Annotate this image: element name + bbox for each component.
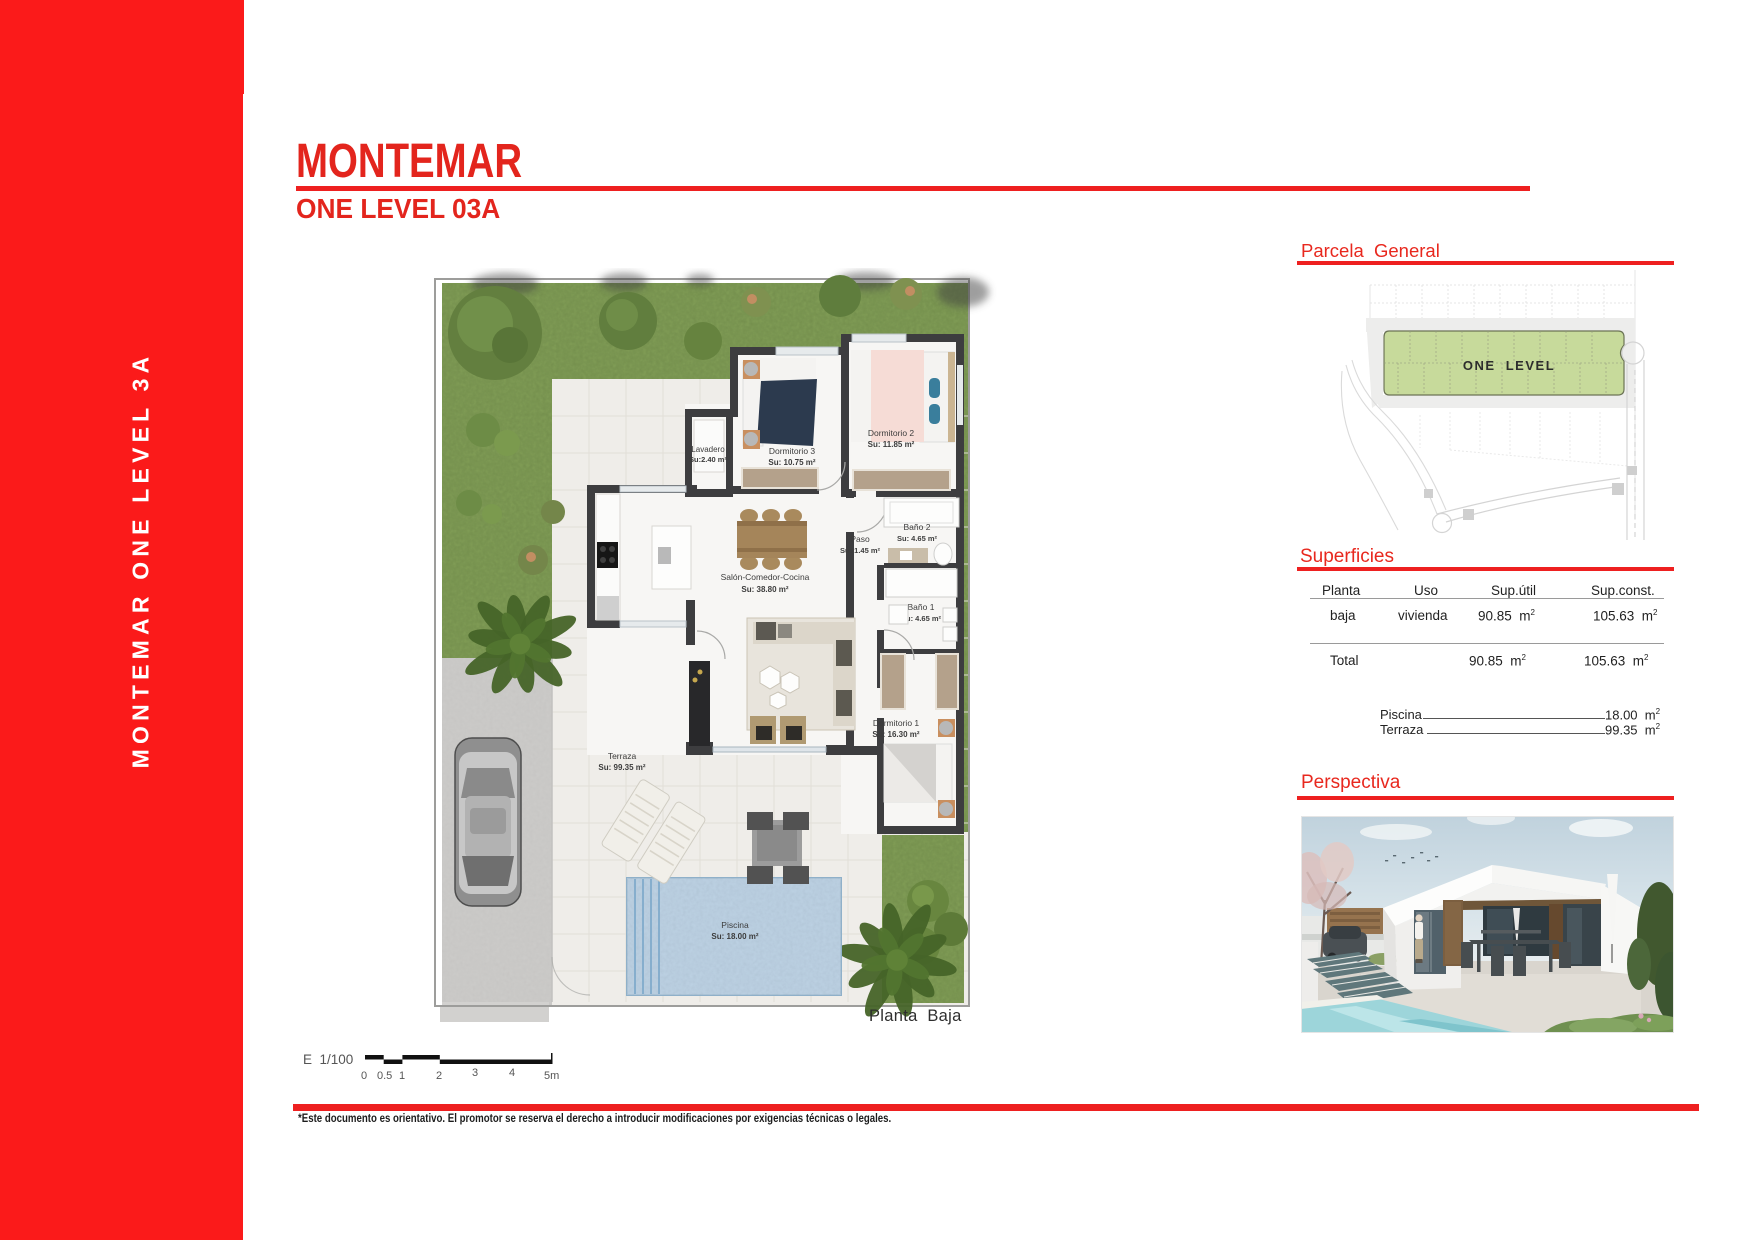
svg-text:Su: 10.75 m²: Su: 10.75 m² <box>768 458 815 467</box>
svg-text:Su: 99.35 m²: Su: 99.35 m² <box>598 763 645 772</box>
svg-text:Dormitorio 3: Dormitorio 3 <box>769 446 816 456</box>
svg-text:Su: 38.80 m²: Su: 38.80 m² <box>741 585 788 594</box>
svg-text:2: 2 <box>436 1070 442 1082</box>
svg-text:E 1/100: E 1/100 <box>303 1052 353 1067</box>
svg-text:Salón-Comedor-Cocina: Salón-Comedor-Cocina <box>721 572 810 582</box>
svg-text:Terraza: Terraza <box>608 751 637 761</box>
svg-text:Su: 16.30 m²: Su: 16.30 m² <box>872 730 919 739</box>
svg-text:Piscina: Piscina <box>721 920 749 930</box>
svg-text:Su: 1.45 m²: Su: 1.45 m² <box>840 546 881 555</box>
svg-text:Su: 18.00 m²: Su: 18.00 m² <box>711 932 758 941</box>
svg-text:0: 0 <box>361 1070 367 1082</box>
svg-text:4: 4 <box>509 1067 515 1079</box>
svg-text:Su:2.40 m²: Su:2.40 m² <box>689 455 727 464</box>
svg-text:Dormitorio 1: Dormitorio 1 <box>873 718 920 728</box>
svg-text:Lavadero: Lavadero <box>691 445 725 454</box>
svg-text:5m: 5m <box>544 1070 559 1082</box>
svg-text:Dormitorio 2: Dormitorio 2 <box>868 428 915 438</box>
svg-text:Su: 4.65 m²: Su: 4.65 m² <box>897 534 938 543</box>
svg-text:Paso: Paso <box>850 534 870 544</box>
svg-text:0.5: 0.5 <box>377 1070 392 1082</box>
svg-text:Su: 11.85 m²: Su: 11.85 m² <box>868 440 915 449</box>
svg-text:1: 1 <box>399 1070 405 1082</box>
svg-text:ONE LEVEL: ONE LEVEL <box>1463 358 1555 373</box>
svg-text:3: 3 <box>472 1067 478 1079</box>
svg-text:Baño 1: Baño 1 <box>908 602 935 612</box>
svg-text:Baño 2: Baño 2 <box>904 522 931 532</box>
